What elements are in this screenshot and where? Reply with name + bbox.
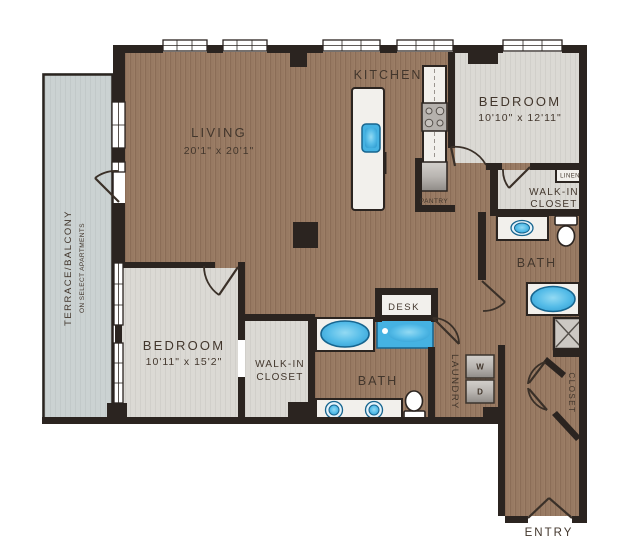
living-label: LIVING [191,125,247,140]
window [163,40,207,51]
bath1-tub-icon [531,287,575,312]
island-sink-basin [365,128,377,148]
burner [426,108,432,114]
window [114,263,123,325]
washer-label: W [476,363,484,372]
bath1-sink-basin [515,223,530,233]
bedroom1-label: BEDROOM [479,94,562,109]
bedroom1-dims: 10'10" x 12'11" [478,112,562,124]
terrace-label-line1: TERRACE/BALCONY [63,210,74,326]
bedroom2-label: BEDROOM [143,338,226,353]
hall-closet-label: CLOSET [567,372,576,413]
window [503,40,562,51]
bath2-toilet-icon [406,391,423,411]
bath1-toilet-icon [558,226,575,246]
living-kitchen-floor [125,52,455,282]
bath2-shower-water [388,324,430,342]
bath2-tub-icon [321,321,369,347]
bath1-toilet-tank [555,216,577,225]
dishwasher-handle-icon [383,152,387,174]
living-dims: 20'1" x 20'1" [184,145,255,157]
window [397,40,453,51]
terrace-floor [42,73,113,422]
walkin1-label-line1: WALK-IN [529,187,579,198]
kitchen-label: KITCHEN [354,68,423,82]
window [114,343,123,403]
burner [436,107,444,115]
bedroom2-dims: 10'11" x 15'2" [146,356,223,368]
hall-junction-floor [455,283,505,314]
laundry-label: LAUNDRY [449,354,460,410]
burner [437,120,443,126]
bath2-sink-basin [369,405,379,415]
walkin2-label-line1: WALK-IN [255,359,305,370]
linen-label: LINEN [560,174,580,180]
desk-label: DESK [388,302,420,313]
bath1-label: BATH [517,256,557,270]
pantry-label: PANTRY [420,198,448,205]
floor-plan-drawing: KITCHEN LIVING 20'1" x 20'1" BEDROOM 10'… [0,0,639,548]
window [223,40,267,51]
dryer-label: D [477,388,483,397]
walkin2-label-line2: CLOSET [256,372,303,383]
window [112,102,125,148]
entry-label: ENTRY [525,527,574,539]
refrigerator-icon [421,162,447,191]
bath2-label: BATH [358,374,398,388]
shower-head-icon [382,328,388,334]
terrace-label-line2: ON SELECT APARTMENTS [79,223,86,313]
burner [425,119,433,127]
stove-icon [422,103,447,131]
walkin1-label-line2: CLOSET [530,199,577,210]
floor-plan: KITCHEN LIVING 20'1" x 20'1" BEDROOM 10'… [0,0,639,548]
bath2-sink-basin [329,405,339,415]
window [323,40,380,51]
